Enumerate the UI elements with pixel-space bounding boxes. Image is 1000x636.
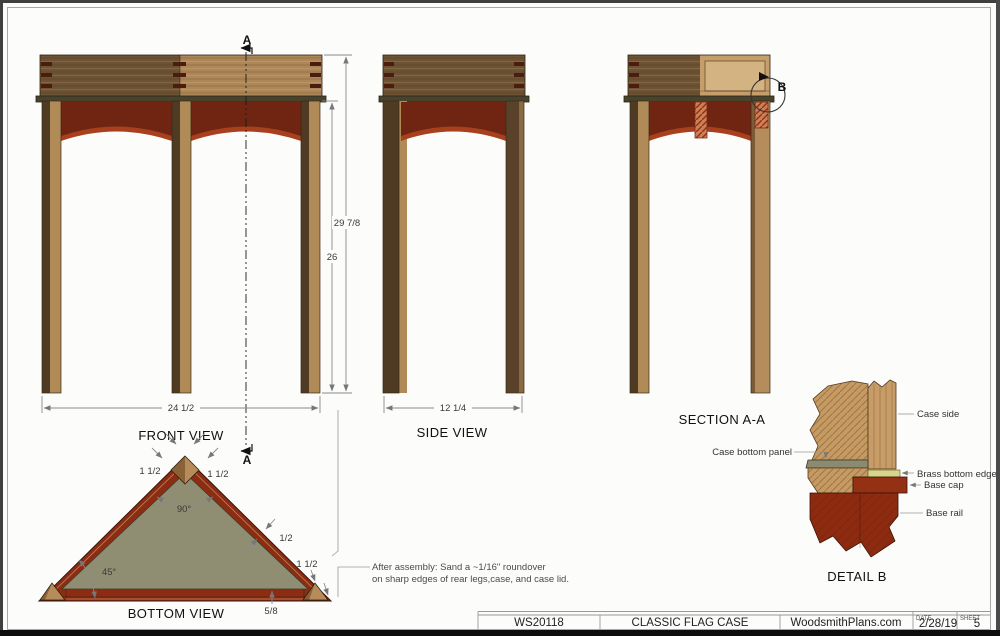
note-line-2: on sharp edges of rear legs,case, and ca…: [372, 574, 569, 585]
dim-total-height: 29 7/8: [334, 218, 360, 229]
dim-rail-offset: 1/2: [279, 533, 292, 544]
dim-leg-height: 26: [327, 252, 338, 263]
detail-marker-b: B: [778, 80, 787, 94]
bottom-view-label: BOTTOM VIEW: [128, 606, 225, 621]
sheet-edge-top: [0, 0, 1000, 3]
detail-base-cap: [853, 477, 907, 493]
callout-case-bottom-panel: Case bottom panel: [712, 447, 792, 458]
sheet-edge-bottom: [0, 630, 1000, 636]
dim-leg-rear: 1 1/2: [296, 559, 317, 570]
callout-base-rail: Base rail: [926, 508, 963, 519]
detail-brass-edge: [868, 470, 900, 477]
callout-case-side: Case side: [917, 409, 959, 420]
dim-corner-angle: 45°: [102, 567, 117, 578]
detail-b-label: DETAIL B: [827, 569, 887, 584]
publisher: WoodsmithPlans.com: [791, 617, 902, 629]
dim-apex-angle: 90°: [177, 504, 192, 515]
drawing-sheet: A A 29 7/8 26 24 1/2 FRONT VIEW: [0, 0, 1000, 636]
sheet-edge-left: [0, 0, 3, 636]
date-value: 2/28/19: [919, 618, 957, 630]
section-marker-top: A: [243, 33, 252, 47]
side-view-label: SIDE VIEW: [417, 425, 488, 440]
section-case-interior: [705, 61, 765, 91]
plan-title: CLASSIC FLAG CASE: [632, 617, 749, 629]
note-line-1: After assembly: Sand a ~1/16" roundover: [372, 562, 546, 573]
dim-leg-front-left: 1 1/2: [139, 466, 160, 477]
sheet-value: 5: [974, 618, 980, 630]
plan-number: WS20118: [514, 617, 564, 629]
sheet-edge-right: [996, 0, 1000, 636]
front-view-label: FRONT VIEW: [138, 428, 224, 443]
dim-width: 24 1/2: [168, 403, 194, 414]
plan-drawing: A A 29 7/8 26 24 1/2 FRONT VIEW: [0, 0, 1000, 636]
dim-rail-height: 5/8: [264, 606, 277, 617]
section-joint-pins: [629, 62, 639, 88]
dim-depth: 12 1/4: [440, 403, 466, 414]
callout-base-cap: Base cap: [924, 480, 964, 491]
section-marker-bottom: A: [243, 453, 252, 467]
side-case-grain: [383, 55, 525, 97]
detail-bottom-panel: [806, 460, 868, 468]
section-aa-label: SECTION A-A: [679, 412, 766, 427]
dim-leg-front-right: 1 1/2: [207, 469, 228, 480]
callout-brass-bottom-edge: Brass bottom edge: [917, 469, 997, 480]
